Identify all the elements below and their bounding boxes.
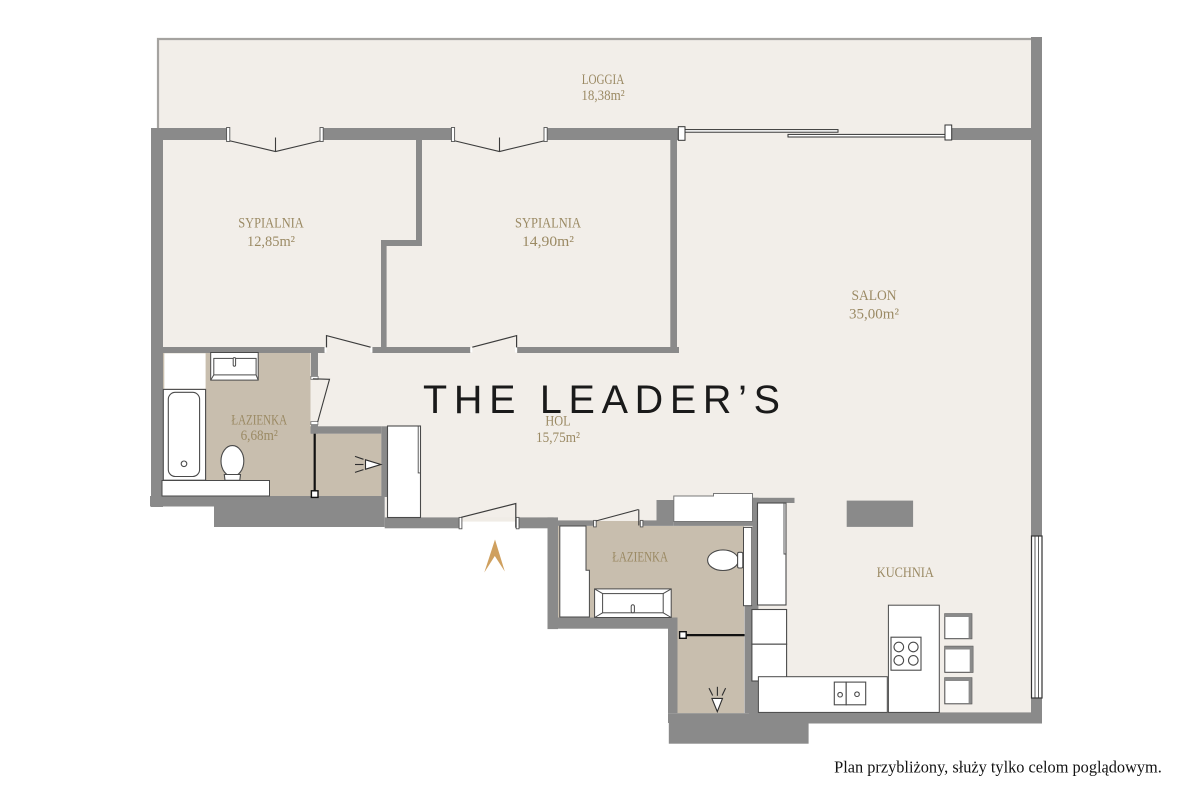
svg-text:12,85m²: 12,85m² bbox=[247, 234, 295, 250]
svg-text:18,38m²: 18,38m² bbox=[581, 88, 625, 104]
svg-text:THE LEADER’S: THE LEADER’S bbox=[423, 378, 780, 422]
svg-text:35,00m²: 35,00m² bbox=[849, 307, 899, 323]
svg-text:KUCHNIA: KUCHNIA bbox=[877, 565, 934, 581]
svg-text:15,75m²: 15,75m² bbox=[536, 430, 580, 446]
svg-text:6,68m²: 6,68m² bbox=[241, 428, 279, 444]
svg-text:ŁAZIENKA: ŁAZIENKA bbox=[231, 413, 287, 429]
svg-text:LOGGIA: LOGGIA bbox=[582, 72, 625, 88]
svg-text:Plan przybliżony, służy tylko: Plan przybliżony, służy tylko celom pogl… bbox=[834, 758, 1162, 777]
svg-text:14,90m²: 14,90m² bbox=[522, 234, 575, 250]
svg-text:SYPIALNIA: SYPIALNIA bbox=[515, 216, 581, 232]
svg-text:SALON: SALON bbox=[851, 288, 896, 304]
svg-text:ŁAZIENKA: ŁAZIENKA bbox=[612, 550, 668, 566]
svg-text:SYPIALNIA: SYPIALNIA bbox=[238, 216, 304, 232]
